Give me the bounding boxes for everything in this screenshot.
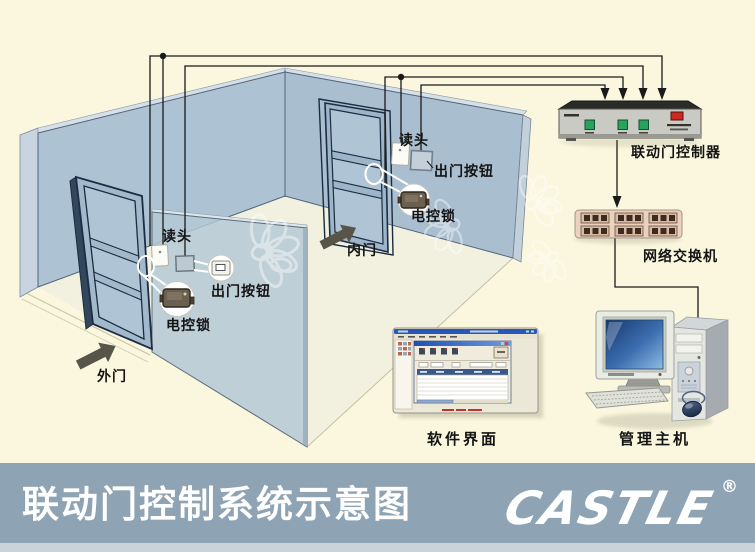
network-switch-label: 网络交换机 <box>643 248 718 265</box>
outer-exit-button-label: 出门按钮 <box>211 283 271 300</box>
inner-door-label: 内门 <box>347 242 377 259</box>
window-menubar <box>394 335 537 340</box>
system-diagram: 联动门控制器 网络交换机 <box>0 0 755 552</box>
electric-lock-icon <box>160 289 194 307</box>
inner-exit-button-label: 出门按钮 <box>434 163 494 180</box>
controller-led <box>618 120 628 130</box>
inner-reader-label: 读头 <box>399 132 429 149</box>
svg-text:CASTLE: CASTLE <box>499 483 719 536</box>
outer-reader-label: 读头 <box>162 228 192 245</box>
window-titlebar <box>394 329 537 334</box>
brand-logo: CASTLE <box>499 483 719 536</box>
outer-exit-button-device <box>176 256 195 272</box>
software-label: 软件界面 <box>427 430 499 448</box>
network-switch-device <box>575 210 682 238</box>
inner-exit-button-device <box>410 150 432 170</box>
registered-mark: ® <box>721 477 738 497</box>
wire-junction-dot <box>398 74 404 80</box>
electric-lock-icon <box>398 192 429 208</box>
controller-led <box>585 120 595 130</box>
host-label: 管理主机 <box>619 430 691 448</box>
controller-label: 联动门控制器 <box>631 144 721 161</box>
controller-led <box>639 120 649 130</box>
banner-title: 联动门控制系统示意图 <box>22 483 412 526</box>
child-window <box>414 341 511 403</box>
outer-lock-label: 电控锁 <box>166 317 211 334</box>
outer-door-label: 外门 <box>97 368 127 385</box>
status-text-red <box>442 409 482 411</box>
wire-junction-dot <box>160 53 166 59</box>
door-controller-device <box>559 101 701 141</box>
inner-lock-label: 电控锁 <box>411 208 456 225</box>
tree-items <box>398 342 411 356</box>
title-banner: 联动门控制系统示意图 CASTLE ® <box>0 463 755 552</box>
controller-power-switch <box>671 112 683 120</box>
diagram-stage: 联动门控制器 网络交换机 <box>0 0 755 552</box>
software-window <box>393 328 538 413</box>
scrollbar-thumb <box>417 400 453 403</box>
